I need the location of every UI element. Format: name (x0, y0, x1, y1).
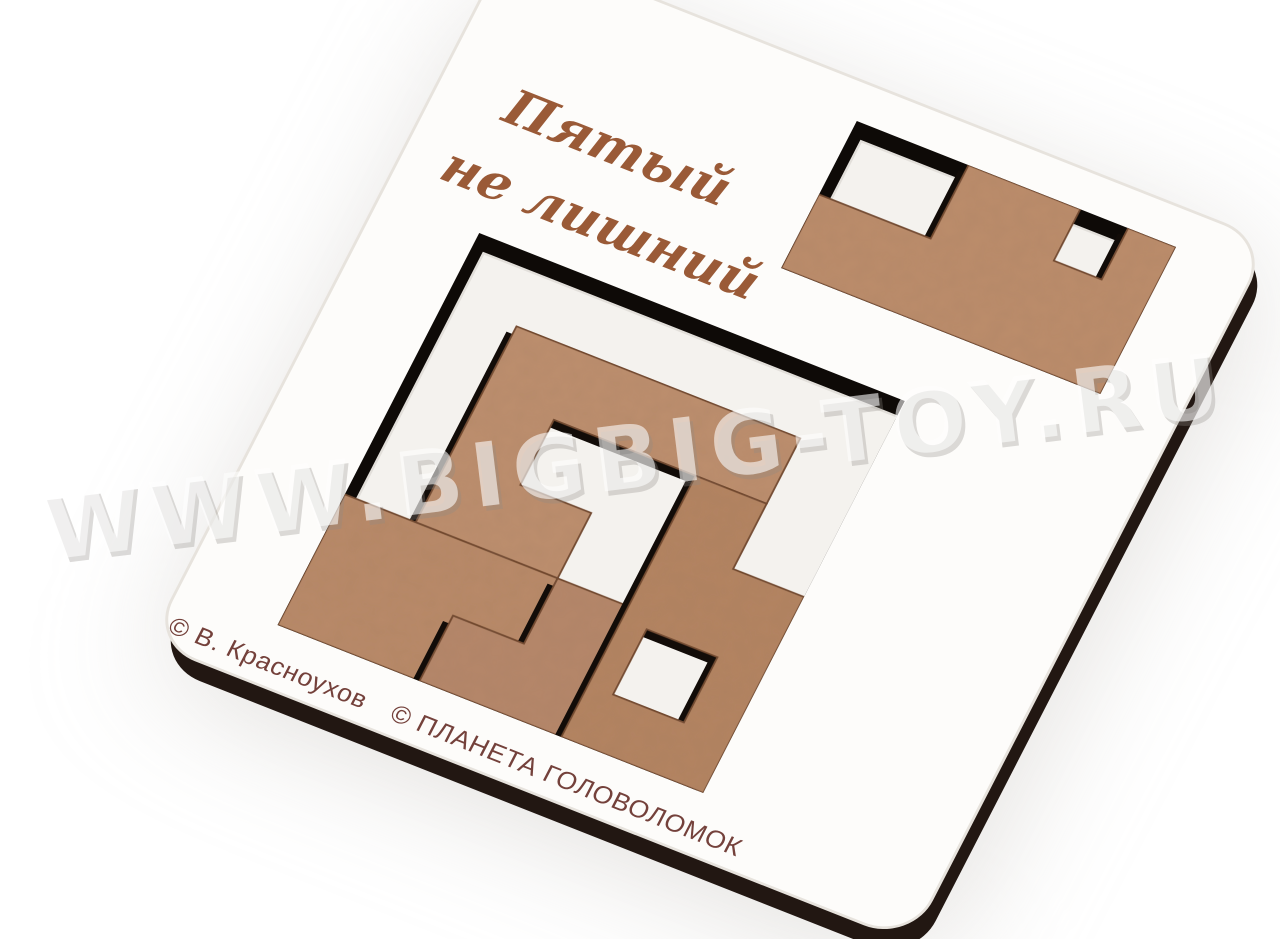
puzzle-product-photo: Пятый не лишний © В. Красноухов © ПЛАНЕТ… (0, 0, 1280, 939)
product-photo-scene: Пятый не лишний © В. Красноухов © ПЛАНЕТ… (0, 0, 1280, 939)
